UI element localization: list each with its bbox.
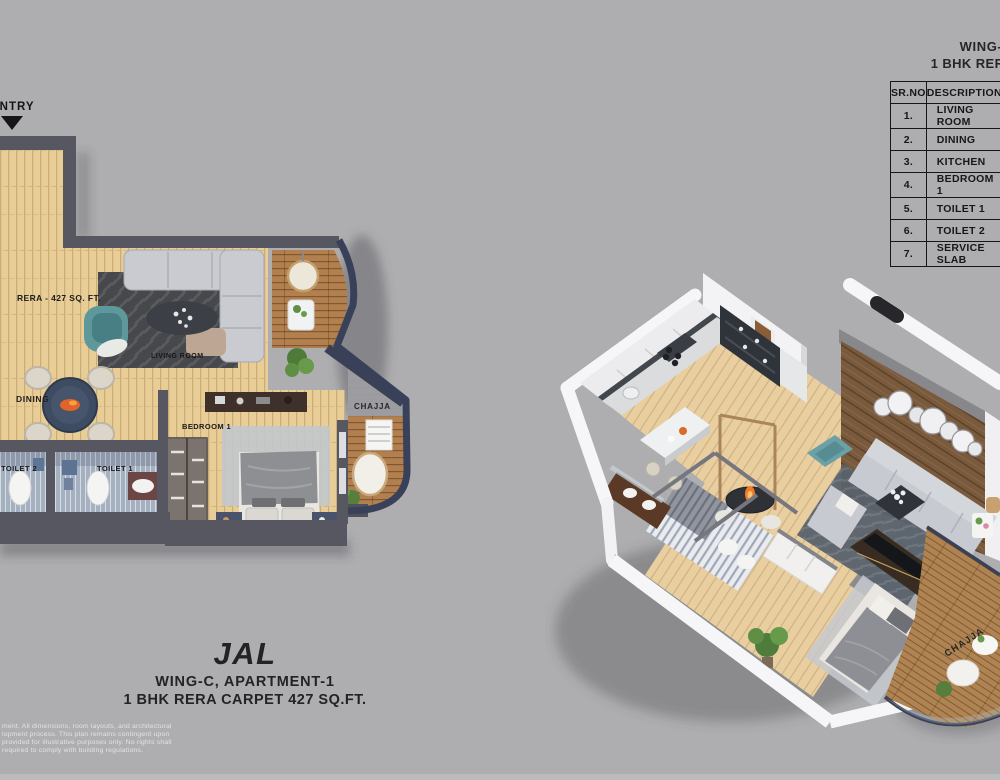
wall-3d (607, 503, 612, 560)
table-row: 3.KITCHEN (891, 151, 1000, 173)
unit-carpet-area: 1 BHK RERA CARPET 427 SQ.FT. (95, 692, 395, 708)
bar-stool (646, 462, 660, 476)
bedroom1-label: BEDROOM 1 (182, 422, 231, 431)
header-description: DESCRIPTION (926, 82, 1000, 104)
dining-chair (88, 367, 114, 389)
wall (165, 520, 347, 546)
hanging-chair-lower (353, 453, 387, 495)
row-desc: SERVICE SLAB (926, 242, 1000, 267)
rera-label: RERA - 427 SQ. FT. (17, 293, 101, 303)
pillow (246, 508, 278, 522)
balcony-table (972, 513, 993, 538)
wc-3d (718, 539, 738, 555)
shower-panel (62, 460, 77, 475)
table-row: 1.LIVING ROOM (891, 104, 1000, 129)
doorway-3d (877, 303, 897, 316)
disclaimer-text: ment. All dimensions, room layouts, and … (2, 723, 172, 755)
side-table-upper (288, 300, 314, 330)
floor-plan-3d: CHAJJA (545, 245, 1000, 745)
toilets (0, 452, 158, 514)
legend-project-name: JAL (903, 6, 1000, 36)
row-num: 2. (891, 129, 927, 151)
row-desc: DINING (926, 129, 1000, 151)
plant-balcony (936, 681, 952, 697)
toilet1-label: TOILET 1 (97, 464, 133, 473)
wc-toilet2 (9, 471, 31, 505)
table-row: 4.BEDROOM 1 (891, 173, 1000, 198)
basin (132, 479, 154, 493)
legend-title-block: JAL WING-C, APARTMENT-1 1 BHK RERA CARPE… (903, 6, 1000, 71)
table-header-row: SR.NO DESCRIPTION (891, 82, 1000, 104)
living-room-label: LIVING ROOM (151, 353, 204, 360)
bottom-edge-strip (0, 774, 1000, 780)
sofa-right (220, 250, 264, 362)
wicker-chair (986, 497, 1000, 513)
row-desc: KITCHEN (926, 151, 1000, 173)
row-num: 1. (891, 104, 927, 129)
header-srno: SR.NO (891, 82, 927, 104)
entry-floor (0, 150, 63, 250)
dining-label: DINING (16, 394, 49, 404)
wall-3d (567, 388, 607, 503)
row-desc: TOILET 2 (926, 220, 1000, 242)
floor-plan-poster: { "entry_marker": { "label": "ENTRY" }, … (0, 0, 1000, 780)
wc-3d (737, 555, 755, 569)
disclaimer-line: ment. All dimensions, room layouts, and … (2, 723, 172, 731)
dining-chair-3d (761, 515, 781, 529)
row-num: 5. (891, 198, 927, 220)
wall (46, 450, 55, 514)
disclaimer-line: provided for illustrative purposes only.… (2, 739, 172, 747)
row-desc: BEDROOM 1 (926, 173, 1000, 198)
hanging-chair-upper (288, 261, 318, 291)
row-num: 7. (891, 242, 927, 267)
table-row: 5.TOILET 1 (891, 198, 1000, 220)
wall (0, 512, 170, 544)
row-num: 4. (891, 173, 927, 198)
chajja-label-2d: CHAJJA (354, 402, 391, 411)
unit-title-block: JAL WING-C, APARTMENT-1 1 BHK RERA CARPE… (95, 638, 395, 708)
bed-blanket (240, 451, 317, 505)
pillow (282, 508, 314, 522)
table-row: 6.TOILET 2 (891, 220, 1000, 242)
unit-wing-apartment: WING-C, APARTMENT-1 (95, 674, 395, 690)
disclaimer-line: required to comply with building regulat… (2, 747, 172, 755)
legend-wing-apartment: WING-C, APARTMENT-1 (903, 39, 1000, 54)
row-num: 6. (891, 220, 927, 242)
legend-carpet-area: 1 BHK RERA CARPET 427 SQ.FT. (903, 56, 1000, 71)
wall (158, 390, 168, 452)
plant-living (285, 348, 314, 377)
wall (63, 236, 339, 248)
row-desc: TOILET 1 (926, 198, 1000, 220)
wall (63, 144, 76, 244)
wall (157, 450, 168, 514)
dining-chair (25, 367, 51, 389)
toilet2-label: TOILET 2 (1, 464, 37, 473)
row-num: 3. (891, 151, 927, 173)
table-row: 2.DINING (891, 129, 1000, 151)
floor-plan-2d: RERA - 427 SQ. FT. LIVING ROOM DINING TO… (0, 100, 420, 652)
wall (0, 440, 168, 452)
sink-3d (623, 387, 639, 399)
wc-toilet1 (87, 471, 109, 505)
coffee-table (146, 301, 218, 335)
room-legend-table: SR.NO DESCRIPTION 1.LIVING ROOM 2.DINING… (890, 81, 1000, 267)
disclaimer-line: lopment process. This plan remains conti… (2, 731, 172, 739)
unit-project-name: JAL (95, 638, 395, 670)
row-desc: LIVING ROOM (926, 104, 1000, 129)
balcony-chair (947, 660, 979, 686)
table-row: 7.SERVICE SLAB (891, 242, 1000, 267)
